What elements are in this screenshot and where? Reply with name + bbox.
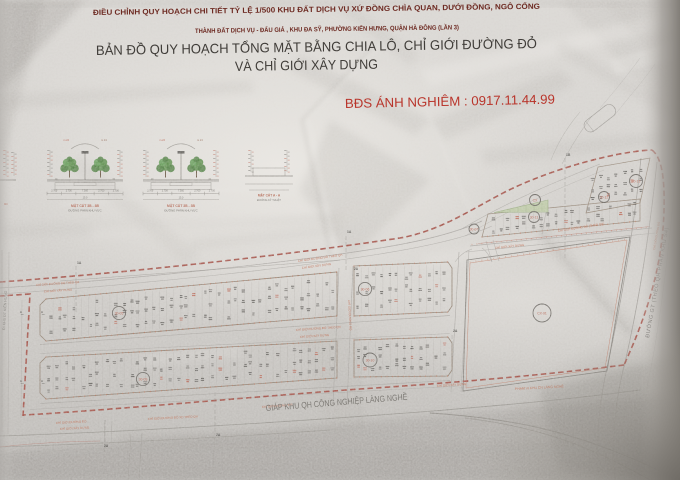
svg-text:VÀ CHỈ GIỚI XÂY DỰNG: VÀ CHỈ GIỚI XÂY DỰNG [235,57,378,74]
